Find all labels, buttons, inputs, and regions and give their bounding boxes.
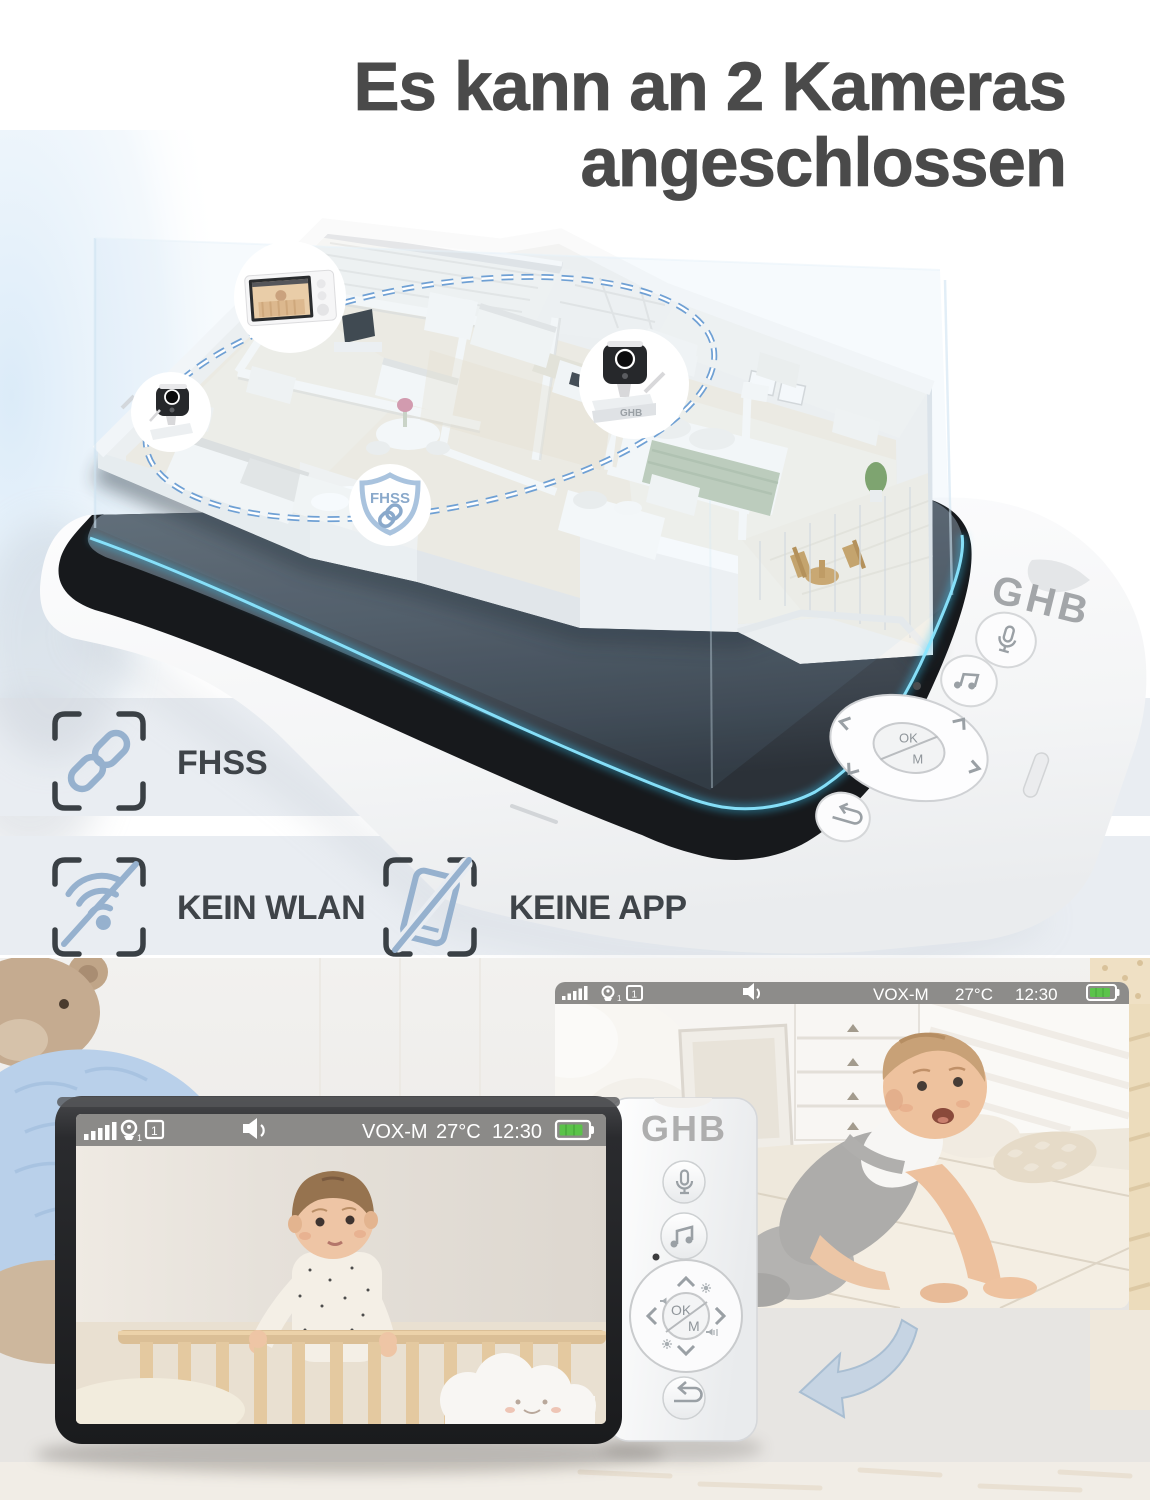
svg-text:KEIN WLAN: KEIN WLAN: [177, 889, 365, 927]
svg-text:OK: OK: [899, 730, 918, 745]
svg-text:1: 1: [151, 1124, 158, 1138]
svg-text:27°C: 27°C: [436, 1121, 481, 1143]
svg-text:angeschlossen: angeschlossen: [580, 124, 1066, 201]
svg-text:27°C: 27°C: [955, 985, 993, 1004]
svg-text:1: 1: [137, 1133, 142, 1143]
svg-text:GHB: GHB: [620, 408, 642, 419]
svg-text:12:30: 12:30: [492, 1121, 542, 1143]
svg-text:VOX-M: VOX-M: [873, 985, 929, 1004]
svg-text:1: 1: [617, 994, 622, 1003]
svg-text:GHB: GHB: [641, 1108, 727, 1149]
svg-text:12:30: 12:30: [1015, 985, 1058, 1004]
svg-text:FHSS: FHSS: [177, 744, 268, 782]
svg-text:VOX-M: VOX-M: [362, 1121, 428, 1143]
svg-text:1: 1: [632, 990, 638, 1001]
svg-text:M: M: [688, 1318, 700, 1334]
svg-text:KEINE APP: KEINE APP: [509, 889, 687, 927]
svg-text:Es kann an 2 Kameras: Es kann an 2 Kameras: [353, 48, 1066, 125]
svg-text:FHSS: FHSS: [370, 490, 410, 507]
svg-text:M: M: [912, 751, 923, 766]
